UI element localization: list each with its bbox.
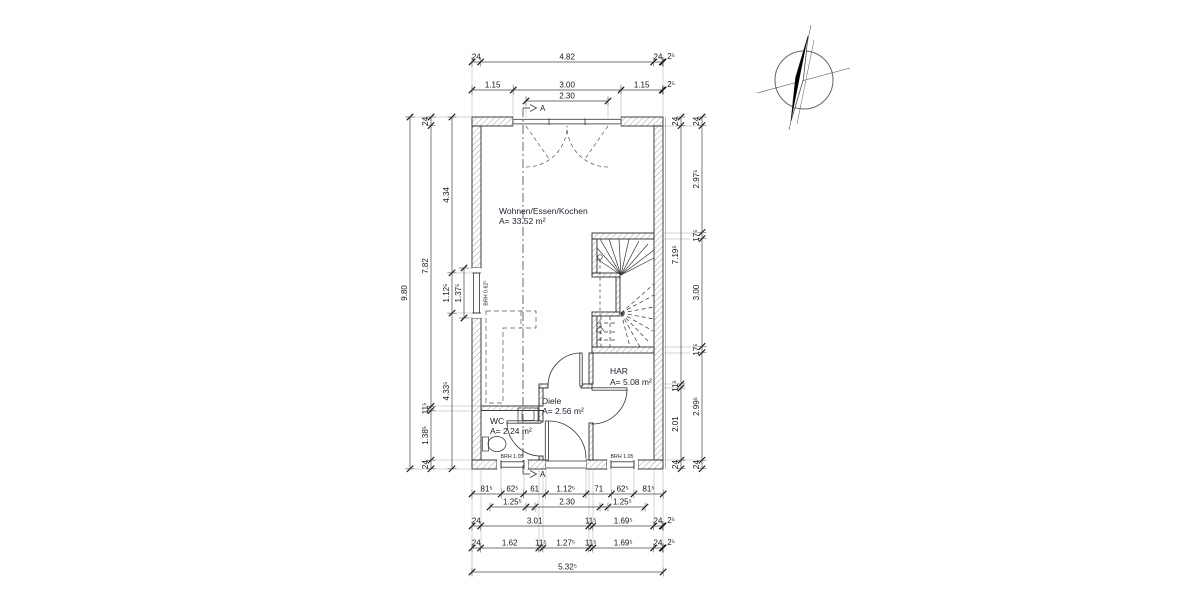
dim-label: 24 (421, 116, 430, 125)
wall-left-upper (472, 126, 481, 268)
dim-label: 1.25⁵ (503, 498, 522, 507)
dim-label: 24 (472, 539, 481, 548)
dim-label: 24 (654, 517, 663, 526)
dim-label: 1.15 (634, 81, 650, 90)
dim-label: 4.34 (442, 187, 451, 203)
window-wc-frame (501, 462, 524, 467)
section-arrow-bottom (530, 471, 537, 478)
dim-label: 1.12⁵ (556, 485, 575, 494)
wall-diele-har-lower (589, 423, 593, 460)
dim-label: 24 (671, 116, 680, 125)
wohnen-door-leaf (580, 353, 582, 386)
dim-label: 24 (654, 539, 663, 548)
extension-lines (405, 55, 697, 574)
wall-diele-har-upper (589, 353, 593, 384)
dim-label: 1.15 (485, 81, 501, 90)
entrance-door-swing (549, 421, 587, 459)
section-label: A (540, 104, 546, 113)
room-area-label: A= 33.52 m² (499, 216, 546, 226)
wall-bottom-3 (586, 460, 607, 469)
window-har-frame (611, 462, 634, 467)
sink-basin (522, 411, 534, 421)
dim-label: 2.01 (671, 416, 680, 432)
wall-stair-recess-bottom (592, 312, 620, 316)
wall-top-left (472, 117, 513, 126)
entrance-door-leaf (545, 421, 548, 460)
brh-label: BRH 1.05 (611, 454, 634, 460)
dim-label: 1.62 (502, 539, 518, 548)
section-label: A (540, 470, 546, 479)
dim-label: 2.99⁵ (692, 397, 701, 416)
brh-label: BRH 0.62⁵ (484, 280, 490, 305)
wall-stair-top (592, 233, 654, 239)
dim-label: 17⁵ (692, 229, 701, 241)
dim-label: 24 (654, 53, 663, 62)
staircase (596, 239, 654, 347)
wall-stair-left-lower (592, 316, 597, 347)
room-area-label: A= 2.56 m² (542, 406, 584, 416)
brh-label: BRH 1.05 (501, 454, 524, 460)
wohnen-door-swing (548, 353, 581, 386)
dim-label: 11⁵ (671, 380, 680, 392)
dim-label: 11⁵ (535, 539, 547, 548)
wall-diele-top-left-stub (539, 384, 548, 388)
dim-label: 62⁵ (506, 485, 518, 494)
wall-top-right (621, 117, 663, 126)
dim-label: 2⁵ (667, 80, 675, 89)
floor-plan-page: { "drawing": { "kind": "Grundriss / floo… (0, 0, 1200, 600)
dim-label: 17⁵ (692, 343, 701, 355)
dim-label: 4.82 (559, 53, 575, 62)
dim-label: 24 (692, 116, 701, 125)
wall-diele-top-right-stub (581, 384, 592, 388)
dim-label: 7.82 (421, 258, 430, 274)
dim-label: 71 (594, 485, 603, 494)
dim-label: 1.25⁵ (613, 498, 632, 507)
stair-treads-solid (597, 239, 654, 275)
dim-label: 3.00 (559, 81, 575, 90)
room-name-label: WC (490, 416, 504, 426)
room-area-label: A= 2.24 m² (490, 426, 532, 436)
dim-label: 1.38⁵ (421, 426, 430, 445)
dim-label: 81⁵ (481, 485, 493, 494)
dim-label: 2.97⁵ (692, 170, 701, 189)
har-door-leaf (592, 388, 627, 390)
north-arrow (757, 25, 850, 130)
dim-label: 2.30 (559, 92, 575, 101)
dim-label: 2⁵ (667, 516, 675, 525)
har-door-swing (592, 389, 627, 424)
dim-label: 3.01 (527, 517, 543, 526)
stair-walkline-start (598, 255, 603, 260)
wall-left-lower (472, 318, 481, 460)
dim-label: 24 (472, 517, 481, 526)
wall-stair-recess-right (616, 277, 620, 312)
toilet-tank (483, 437, 489, 451)
terrace-door-swing-right (567, 126, 608, 167)
dim-label: 24 (421, 460, 430, 469)
dim-label: 2⁵ (667, 538, 675, 547)
wall-bottom-4 (638, 460, 663, 469)
terrace-door-frame (513, 119, 621, 124)
window-left-frame (474, 273, 480, 313)
dim-label: 2.30 (559, 498, 575, 507)
dim-label: 5.32⁵ (558, 563, 577, 572)
dim-label: 4.33⁵ (442, 382, 451, 401)
room-name-label: Diele (542, 396, 562, 406)
dim-label: 24 (472, 53, 481, 62)
room-name-label: HAR (610, 366, 628, 376)
dim-label: 2⁵ (667, 52, 675, 61)
dim-label: 1.27⁵ (556, 539, 575, 548)
terrace-door-swing-left (526, 126, 567, 167)
wall-bottom-2 (528, 460, 546, 469)
dim-label: 24 (692, 460, 701, 469)
section-arrow-top (530, 105, 537, 112)
wall-stair-recess-top (592, 273, 620, 277)
dim-label: 1.69⁵ (614, 539, 633, 548)
dim-label: 3.00 (692, 284, 701, 300)
dim-label: 1.12⁵ (442, 284, 451, 303)
dim-label: 61 (530, 485, 539, 494)
dim-label: 9.80 (400, 285, 409, 301)
wall-stair-bottom (592, 347, 654, 353)
dim-label: 62⁵ (617, 485, 629, 494)
dim-label: 1.37⁵ (454, 284, 463, 303)
dim-label: 1.69⁵ (614, 517, 633, 526)
room-name-label: Wohnen/Essen/Kochen (499, 206, 588, 216)
dim-label: 11⁵ (585, 517, 597, 526)
dim-label: 24 (671, 460, 680, 469)
wall-right (654, 126, 663, 460)
dim-label: 11⁵ (585, 539, 597, 548)
dim-label: 81⁵ (642, 485, 654, 494)
floor-plan-canvas: 244.82242⁵1.153.001.152⁵81⁵62⁵611.12⁵716… (0, 0, 1200, 600)
room-area-label: A= 5.08 m² (610, 377, 652, 387)
dim-label: 7.19⁵ (671, 245, 680, 264)
kitchen-counter (486, 311, 536, 403)
dim-label: 11⁵ (421, 403, 430, 415)
wall-wc-diele-lower (539, 456, 543, 460)
wall-stair-left-upper (592, 239, 597, 273)
wall-bottom-1 (472, 460, 497, 469)
toilet-bowl (488, 437, 506, 452)
